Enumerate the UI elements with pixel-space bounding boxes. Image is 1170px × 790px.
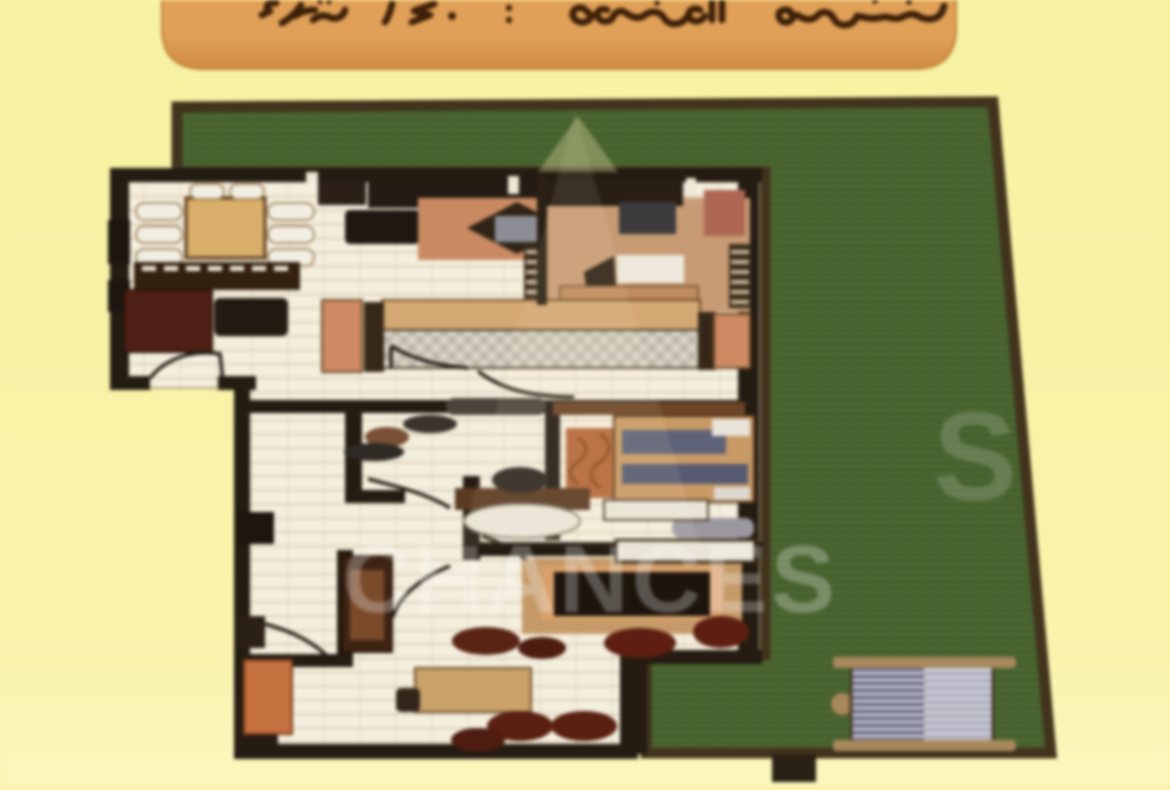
- svg-text:CHANCES: CHANCES: [342, 526, 838, 633]
- svg-text:S: S: [933, 386, 1017, 527]
